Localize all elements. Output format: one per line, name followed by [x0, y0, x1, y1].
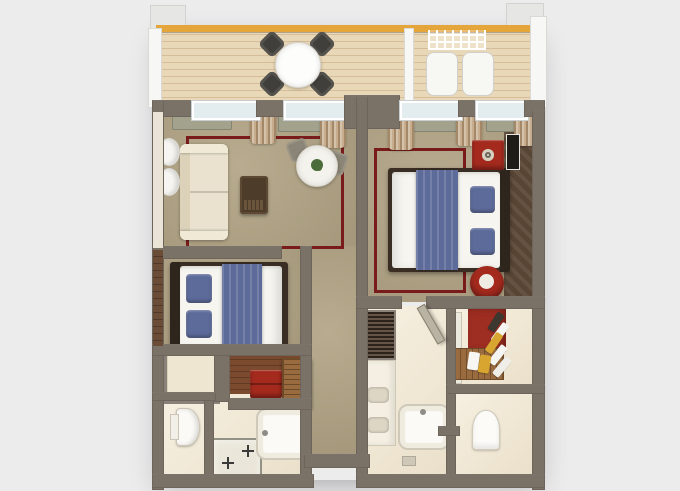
red-nightstand: [472, 140, 504, 170]
wall-nook-divider: [214, 352, 230, 402]
sink-basin: [367, 417, 389, 433]
wall-bottom-left: [152, 474, 314, 488]
right-bed-headboard: [500, 168, 510, 272]
wall-finish-wood: [153, 250, 163, 346]
balcony-end-wall-left: [148, 28, 162, 108]
wall-nook-bath: [228, 398, 312, 410]
sofa: [180, 144, 228, 240]
sliding-glass-door: [284, 101, 346, 120]
wall-corridor-left: [300, 246, 312, 488]
right-bed-pillow: [470, 186, 495, 213]
sliding-glass-door: [400, 101, 462, 120]
toilet: [472, 410, 500, 450]
lounge-chair: [462, 52, 494, 96]
bathtub-faucet: [262, 430, 268, 436]
sofa-cushion-seam: [190, 191, 228, 193]
balcony-end-wall-right: [530, 16, 547, 108]
left-bed-runner: [222, 264, 262, 350]
table-lamp: [482, 149, 494, 161]
wall-unit-divider: [356, 96, 368, 488]
right-bed-runner: [416, 170, 458, 270]
right-bed-frame: [388, 168, 510, 272]
wall-bed-bath-right-b: [426, 296, 545, 309]
red-bench: [250, 370, 282, 398]
bench-seam: [250, 383, 282, 385]
ottoman-shelf: [244, 200, 264, 210]
sliding-glass-door: [192, 101, 260, 120]
wall-corridor-bottom: [304, 454, 370, 468]
wall-living-bedroom: [152, 246, 282, 259]
shower-drain: [402, 456, 416, 466]
side-table-top: [479, 274, 494, 289]
pergola-trellis: [428, 30, 486, 50]
wall-closet-divider: [446, 296, 456, 394]
left-bed-pillow: [186, 274, 212, 303]
balcony-divider-wall: [404, 28, 414, 106]
left-bed-headboard: [170, 262, 180, 352]
sofa-backrest: [180, 144, 190, 240]
outdoor-round-table: [275, 42, 321, 88]
shower-handle: [227, 457, 229, 469]
left-bed-frame: [170, 262, 288, 352]
exterior-wall-segment: [458, 100, 476, 117]
wall-toilet-compartment: [204, 396, 214, 476]
wall-finish-light: [153, 112, 163, 248]
red-side-table: [470, 266, 504, 300]
wall-toilet-comp-top: [152, 392, 216, 401]
exterior-wall-segment: [256, 100, 284, 117]
corridor-floor: [306, 246, 362, 462]
sliding-glass-door: [476, 101, 528, 120]
ottoman-coffee-table: [240, 176, 268, 214]
wall-toilet-room: [446, 394, 456, 478]
toilet-tank: [170, 414, 179, 440]
sink-basin: [367, 387, 389, 403]
wall-bed-bath-right-a: [356, 296, 402, 309]
wall-stub-toilet-room: [438, 426, 460, 436]
wall-bedroom-south: [152, 344, 312, 356]
exterior-wall-junction: [344, 95, 400, 129]
breakfast-table: [296, 145, 338, 187]
wall-bottom-right: [356, 474, 545, 488]
sofa-armrest: [180, 231, 228, 240]
bathtub-faucet: [420, 409, 426, 415]
wall-art-panel: [506, 134, 520, 170]
wall-closet-toilet: [446, 384, 545, 394]
shower-handle: [247, 445, 249, 457]
table-plant: [311, 159, 323, 171]
left-bed-pillow: [186, 310, 212, 338]
right-bed-pillow: [470, 228, 495, 255]
lounge-chair: [426, 52, 458, 96]
sofa-armrest: [180, 144, 228, 153]
floor-plan-rendering: [0, 0, 680, 491]
